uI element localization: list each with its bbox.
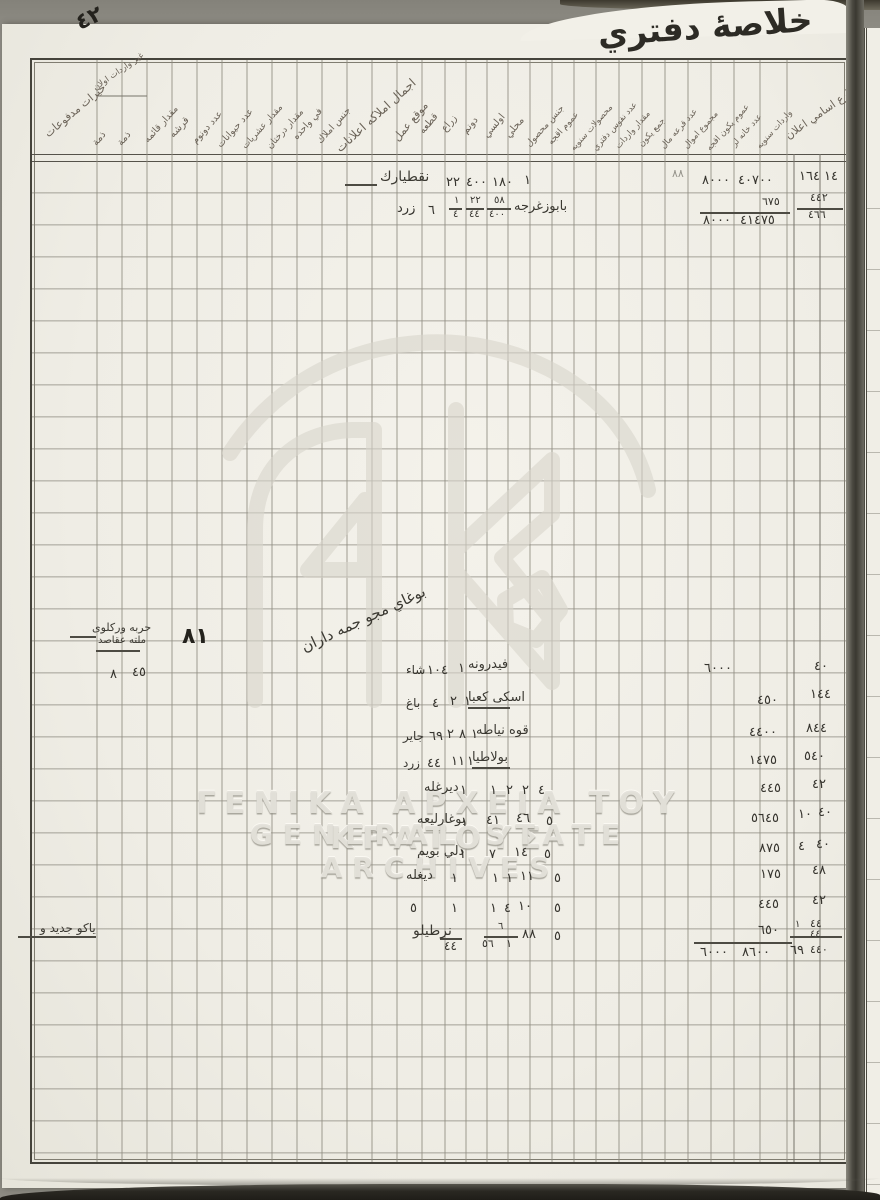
handwritten-entry: ١٠ <box>518 900 532 913</box>
handwritten-entry: ١٨٠ <box>492 176 513 189</box>
handwritten-entry: ٥٦ <box>482 938 494 949</box>
handwritten-entry: ٥ <box>546 815 553 828</box>
handwritten-entry: ١١ <box>520 870 534 883</box>
handwritten-entry: ٤٥ <box>132 666 146 679</box>
handwritten-entry: ١٤ <box>514 846 528 859</box>
handwritten-entry: ٤٤ <box>469 210 480 220</box>
handwritten-entry: ١٤٧٥ <box>749 754 777 767</box>
handwritten-entry: زرد <box>403 757 420 769</box>
handwritten-entry: ٥ <box>544 848 551 861</box>
handwritten-entry: ٤٠٠ <box>489 210 505 220</box>
handwritten-entry: ١ <box>506 872 513 885</box>
archive-monogram-watermark <box>200 318 660 718</box>
handwritten-entry: ٨٠٠٠ <box>702 174 730 187</box>
handwritten-entry: ٨٨ <box>522 928 536 941</box>
handwritten-entry: ١ <box>451 872 458 885</box>
handwritten-entry: نقطيارك <box>380 170 429 184</box>
handwritten-entry: ٤٠٧٠٠ <box>738 174 773 187</box>
handwritten-entry: ٦٠٠٠ <box>704 662 732 675</box>
handwritten-entry: ٤٤٥ <box>758 898 779 911</box>
handwritten-entry: ٨٦٠٠ <box>742 946 770 959</box>
handwritten-entry: قوه نياطه <box>476 724 529 737</box>
handwritten-entry: ٤ <box>453 210 458 220</box>
handwritten-entry: ١ <box>460 784 467 797</box>
handwritten-entry: ٤٥٠ <box>757 694 778 707</box>
sum-rule <box>468 707 510 709</box>
handwritten-entry: ٤٨ <box>812 864 826 877</box>
handwritten-entry: ٤٢ <box>812 894 826 907</box>
handwritten-entry: ٦٩ <box>790 944 804 957</box>
sum-rule <box>694 942 792 944</box>
handwritten-entry: ١٠٤ <box>427 664 448 677</box>
handwritten-entry: ٢ <box>506 784 513 797</box>
handwritten-entry: بولاطيا <box>472 751 508 764</box>
handwritten-entry: ٦٧٥ <box>762 196 780 207</box>
handwritten-entry: ٤٤ <box>427 757 441 770</box>
handwritten-entry: ٥٤٠ <box>804 750 825 763</box>
handwritten-entry: ١٦٤ <box>799 170 820 183</box>
sum-rule <box>345 184 377 186</box>
handwritten-entry: بابوزغرجه <box>514 200 567 213</box>
next-page-edge <box>864 28 880 1200</box>
handwritten-entry: ٨٧٥ <box>759 842 780 855</box>
handwritten-entry: ٦٥٠ <box>758 924 779 937</box>
handwritten-entry: ٢ <box>522 784 529 797</box>
handwritten-entry: ٤ <box>798 840 805 853</box>
handwritten-entry: ٤١ <box>486 814 500 827</box>
handwritten-entry: ١ <box>490 902 497 915</box>
handwritten-entry: ١ <box>458 662 465 675</box>
handwritten-entry: ٤٦ <box>516 812 530 825</box>
handwritten-entry: ١ <box>454 196 459 206</box>
handwritten-entry: ١ <box>451 902 458 915</box>
handwritten-entry: ملته عقاصد <box>98 636 146 646</box>
handwritten-entry: ديغله <box>406 869 433 882</box>
handwritten-entry: ٤٦٦ <box>808 209 826 220</box>
handwritten-entry: ٤٠ <box>816 838 830 851</box>
handwritten-entry: ٤ <box>538 784 545 797</box>
handwritten-entry: ٤ <box>432 697 439 710</box>
handwritten-entry: ١ <box>461 816 468 829</box>
handwritten-entry: باغ <box>406 697 420 709</box>
sum-rule <box>96 650 140 652</box>
handwritten-entry: ٨٠٠٠ <box>703 214 731 227</box>
handwritten-entry: ١ <box>459 848 466 861</box>
handwritten-entry: ٤٤ <box>810 930 821 940</box>
handwritten-entry: ٤٠ <box>814 660 828 673</box>
handwritten-entry: ٨٤٤ <box>806 722 827 735</box>
handwritten-entry: ١٧٥ <box>760 868 781 881</box>
handwritten-entry: ٤٢ <box>812 778 826 791</box>
handwritten-entry: حربه وركلوى <box>92 622 151 633</box>
handwritten-entry: ٦ <box>428 204 435 217</box>
handwritten-entry: ١ <box>490 784 497 797</box>
handwritten-entry: زرد <box>397 202 415 215</box>
handwritten-entry: ٥ <box>410 902 417 915</box>
handwritten-entry: ١٤ <box>824 170 838 183</box>
book-gutter-shadow <box>846 0 864 1200</box>
scanned-ledger-page: خلاصۀ دفتري <box>0 0 880 1200</box>
handwritten-entry: ٤٤٠٠ <box>749 726 777 739</box>
sum-rule <box>70 636 96 638</box>
handwritten-entry: ٤٤ <box>444 940 457 952</box>
handwritten-entry: ٦٩ <box>429 730 443 743</box>
handwritten-entry: ٤ <box>504 902 511 915</box>
handwritten-entry: ٢ <box>450 695 457 708</box>
handwritten-entry: ٨١ <box>182 626 209 648</box>
handwritten-entry: ٢ <box>447 728 454 741</box>
handwritten-entry: ١ <box>524 174 531 187</box>
next-page-rulings <box>867 148 880 1200</box>
handwritten-entry: ٦٠٠٠ <box>700 946 728 959</box>
handwritten-entry: فيدرونه <box>468 658 508 671</box>
handwritten-entry: ياكو جديد و <box>40 922 96 934</box>
handwritten-entry: جاير <box>403 730 424 742</box>
handwritten-entry: ٨ <box>110 668 117 681</box>
handwritten-entry: ٤٤٥ <box>760 782 781 795</box>
sum-rule <box>472 767 510 769</box>
handwritten-entry: شاء <box>406 664 425 676</box>
handwritten-entry: ١ <box>492 872 499 885</box>
handwritten-entry: ٥ <box>554 872 561 885</box>
handwritten-entry: اسكى كعبا <box>468 691 525 704</box>
handwritten-entry: ٥٨ <box>494 196 505 206</box>
handwritten-entry: ٥ <box>554 902 561 915</box>
handwritten-entry: ٥٦٤٥ <box>751 812 779 825</box>
handwritten-entry: ٤٤ <box>810 918 822 929</box>
handwritten-entry: ٤٠ <box>818 806 832 819</box>
handwritten-entry: ٨٨ <box>672 168 684 179</box>
handwritten-entry: ١٠ <box>798 808 812 821</box>
handwritten-entry: ١١ <box>451 755 465 768</box>
handwritten-entry: ٤٤٢ <box>810 192 828 203</box>
handwritten-entry: ١ <box>506 938 512 949</box>
handwritten-entry: ٨ <box>459 728 466 741</box>
sum-rule <box>18 936 96 938</box>
handwritten-entry: دلي بويم <box>417 845 464 858</box>
handwritten-entry: ٥ <box>554 930 561 943</box>
handwritten-entry: ٤٠٠ <box>466 176 487 189</box>
handwritten-entry: بوغارليعه <box>417 813 466 826</box>
handwritten-entry: نرطيلو <box>413 924 452 938</box>
handwritten-entry: ٢٢ <box>470 196 481 206</box>
handwritten-entry: ٤٤٠ <box>810 944 828 955</box>
handwritten-entry: ديرغله <box>424 781 459 794</box>
handwritten-entry: ٢٢ <box>446 176 460 189</box>
handwritten-entry: ٧ <box>489 848 496 861</box>
handwritten-entry: ١٤٤ <box>810 688 831 701</box>
handwritten-entry: ٤١٤٧٥ <box>740 214 775 227</box>
handwritten-entry: ١ <box>795 920 800 930</box>
handwritten-entry: ٦ <box>498 922 503 932</box>
